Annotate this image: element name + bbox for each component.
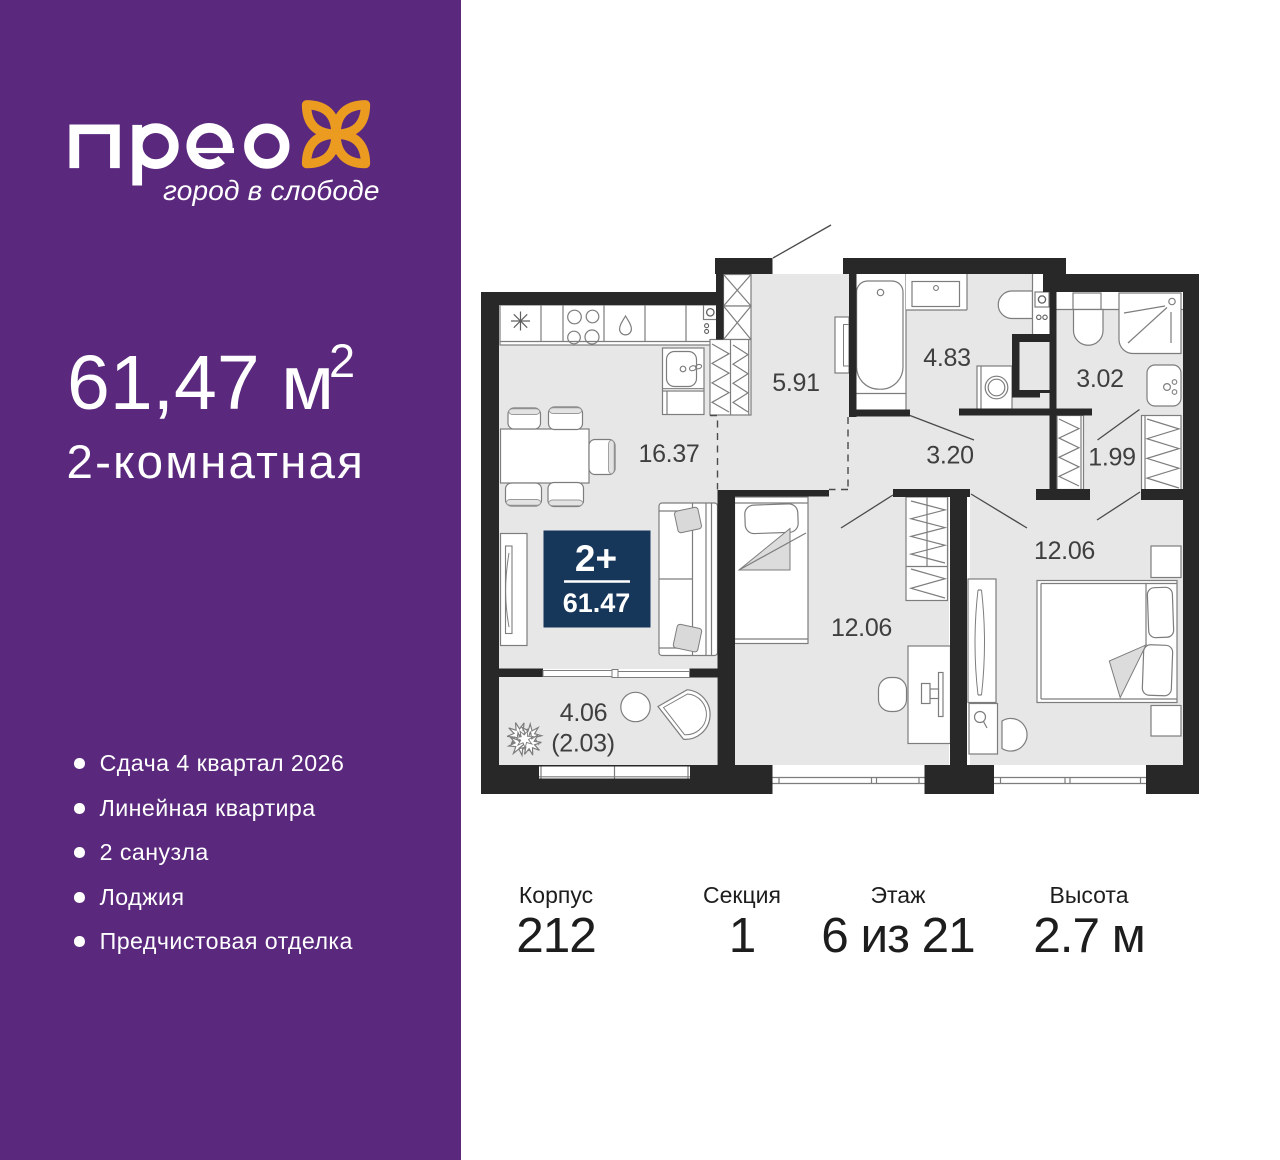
svg-text:1.99: 1.99 [1088,444,1135,472]
svg-text:4.83: 4.83 [923,344,970,372]
svg-text:(2.03): (2.03) [551,730,615,758]
svg-text:16.37: 16.37 [638,440,699,468]
svg-text:12.06: 12.06 [831,614,892,642]
svg-text:4.06: 4.06 [560,699,607,727]
svg-text:12.06: 12.06 [1034,537,1095,565]
svg-text:61.47: 61.47 [563,588,631,618]
svg-text:5.91: 5.91 [772,369,819,397]
svg-text:3.02: 3.02 [1076,365,1123,393]
svg-text:2+: 2+ [575,538,617,579]
svg-text:3.20: 3.20 [926,442,973,470]
